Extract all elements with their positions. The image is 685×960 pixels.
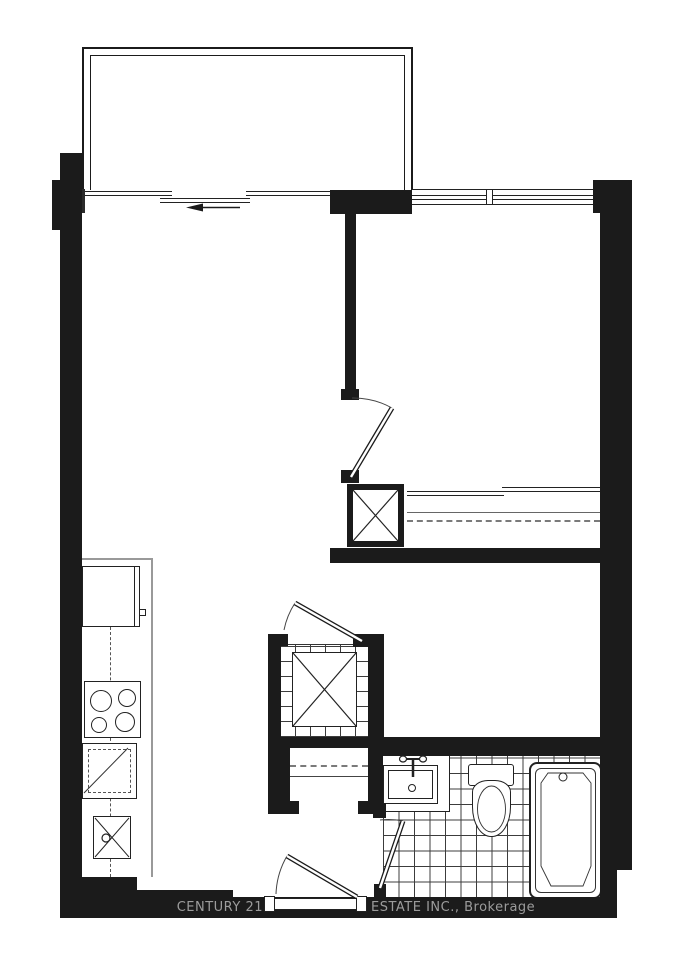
entry-door-jamb-right	[356, 896, 367, 912]
entry-closet-shelf	[290, 776, 368, 777]
wall-left-step	[52, 180, 61, 230]
entry-closet-jamb-right	[358, 801, 369, 814]
balcony-railing-inner	[90, 55, 405, 190]
entry-closet-jamb-left	[288, 801, 299, 814]
burner-bottom-right	[115, 712, 135, 732]
wall-window-header	[330, 190, 412, 214]
vanity-drain	[408, 784, 416, 792]
bedroom-window	[412, 189, 593, 205]
refrigerator-handle	[139, 609, 146, 616]
slide-direction-arrow	[186, 204, 240, 212]
window-mullion	[486, 190, 493, 204]
laundry-jamb-left	[268, 634, 288, 646]
closet-rod	[407, 520, 600, 522]
balcony-door-fixed-panel-2	[246, 191, 332, 196]
watermark-left-text: CENTURY 21	[60, 900, 263, 915]
bedroom-door-jamb-bottom	[341, 470, 359, 483]
wall-right	[600, 180, 632, 870]
bathroom-wall-top	[383, 737, 602, 756]
stacked-washer-dryer	[292, 652, 357, 727]
entry-closet-wall-left	[268, 742, 290, 814]
counter-edge-top	[82, 558, 152, 560]
closet-sliding-panel-a	[407, 491, 504, 496]
bedroom-door	[351, 398, 392, 477]
wall-left	[60, 153, 82, 918]
floor-plan: CENTURY 21 ESTATE INC., Brokerage	[0, 0, 685, 960]
toilet-bowl	[472, 780, 511, 837]
entry-door-threshold	[274, 898, 357, 910]
entry-door	[276, 856, 357, 897]
utility-shaft-inner	[353, 490, 398, 541]
dishwasher-inner	[88, 749, 131, 793]
kitchen-sink	[93, 816, 131, 859]
burner-top-left	[90, 690, 112, 712]
refrigerator	[82, 566, 140, 627]
bathroom-door-hinge-block	[374, 884, 386, 898]
wall-bedroom-partition	[345, 213, 356, 390]
laundry-door	[284, 603, 362, 641]
wall-kitchen-end	[60, 877, 137, 899]
closet-shelf-line	[407, 512, 600, 513]
counter-edge-right	[151, 558, 153, 877]
balcony-door-fixed-panel	[85, 191, 172, 196]
burner-top-right	[118, 689, 136, 707]
closet-sliding-panel-b	[502, 487, 600, 492]
bathroom-door-jamb	[373, 803, 386, 818]
entry-closet-rod	[290, 765, 368, 767]
bedroom-door-jamb-top	[341, 389, 359, 400]
wall-closet-bottom	[330, 548, 602, 563]
watermark-right-text: ESTATE INC., Brokerage	[371, 900, 535, 915]
wall-kitchen-end-step	[137, 890, 233, 899]
bathtub-rim-inner	[535, 768, 596, 893]
burner-bottom-left	[91, 717, 107, 733]
laundry-wall-left	[268, 634, 281, 748]
laundry-jamb-right	[353, 634, 373, 647]
balcony-door-sliding-panel	[160, 198, 250, 203]
laundry-wall-right	[368, 634, 384, 748]
